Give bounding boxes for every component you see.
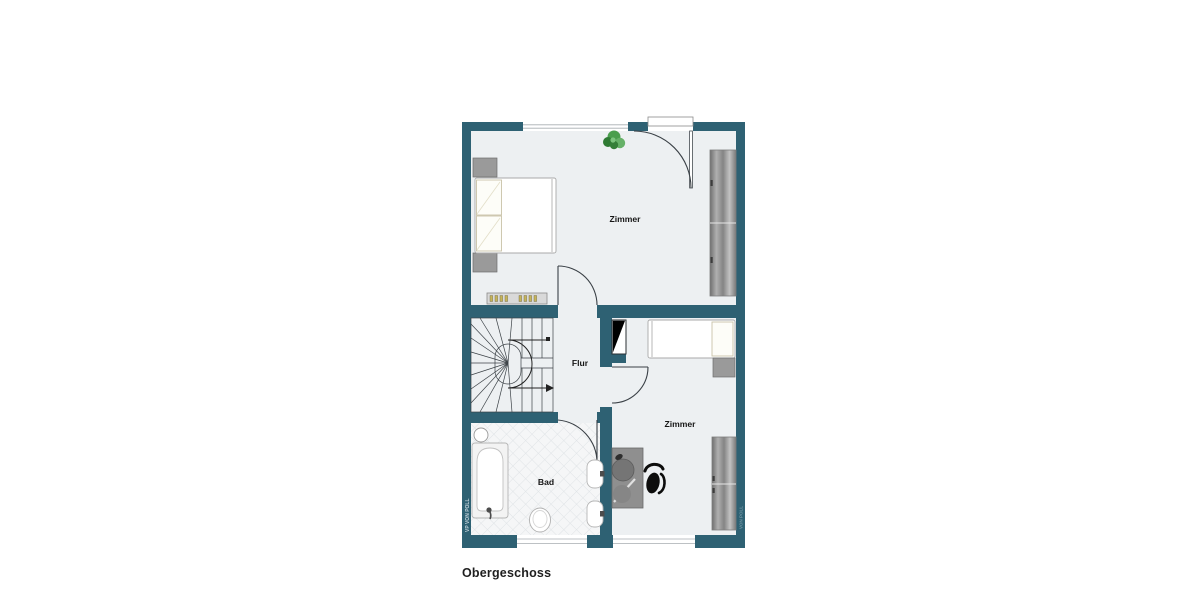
radiator [487, 293, 547, 304]
desk [612, 448, 643, 508]
toilet [530, 508, 551, 532]
room-label-zimmer-bottom: Zimmer [664, 419, 696, 429]
floorplan-page: Zimmer Flur Zimmer Bad VP VON POLL VON P… [0, 0, 1200, 600]
bathtub [472, 443, 508, 519]
single-bed [648, 320, 735, 358]
floor-plan-svg: Zimmer Flur Zimmer Bad VP VON POLL VON P… [462, 114, 745, 548]
window-top [523, 122, 628, 131]
nightstand [473, 253, 497, 272]
wardrobe-bottom [712, 437, 736, 530]
double-bed [475, 178, 556, 253]
watermark-logo-left: VP VON POLL [465, 498, 471, 532]
sink [587, 460, 605, 488]
nightstand [473, 158, 497, 177]
shaft-symbol [612, 320, 626, 354]
watermark-logo-right: VON POLL [739, 506, 744, 529]
bath-stool [474, 428, 488, 442]
room-label-flur: Flur [572, 358, 589, 368]
window-bottom-right [613, 535, 695, 548]
nightstand [713, 358, 735, 377]
plan-caption: Obergeschoss [462, 566, 551, 580]
wardrobe-top [710, 150, 736, 296]
window-bottom-left [517, 535, 587, 548]
room-label-zimmer-top: Zimmer [609, 214, 641, 224]
room-label-bad: Bad [538, 477, 554, 487]
sink [587, 501, 605, 527]
floor-plan: Zimmer Flur Zimmer Bad VP VON POLL VON P… [462, 114, 745, 548]
